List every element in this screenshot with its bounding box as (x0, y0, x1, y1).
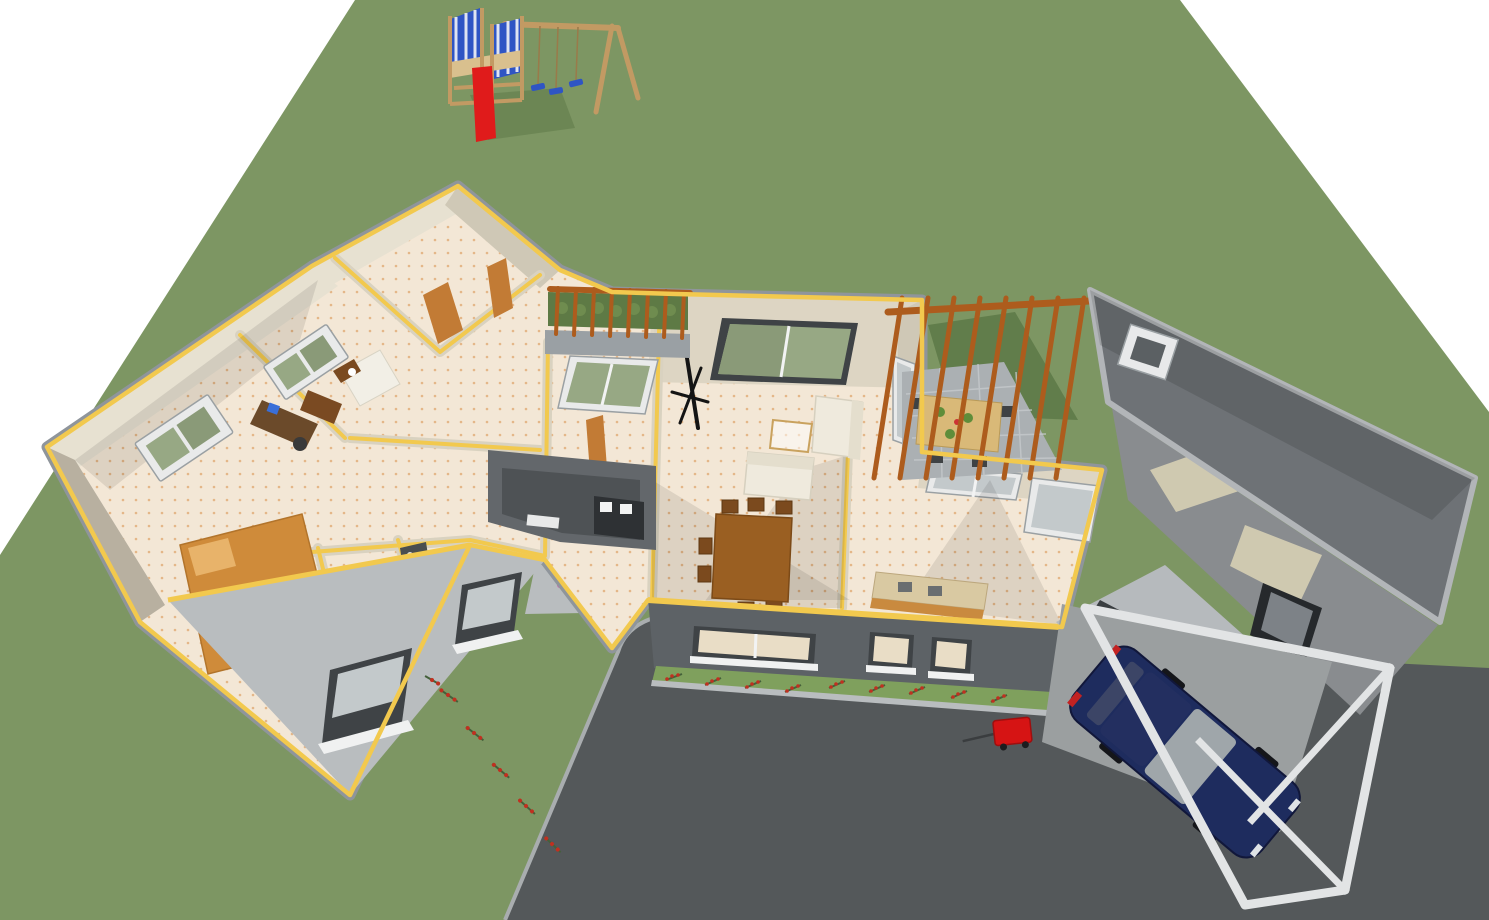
living-sliding-window (710, 318, 858, 385)
kitchen-corner-window (1024, 478, 1100, 542)
slide (472, 66, 496, 142)
sofa (744, 452, 814, 500)
garden-pergola (545, 288, 690, 358)
facade-window-small-2 (928, 637, 974, 681)
front-door (594, 496, 644, 540)
hall-window (558, 356, 658, 414)
coffee-table (770, 420, 812, 452)
3d-viewport[interactable] (0, 0, 1489, 920)
facade-window-small-1 (866, 632, 916, 675)
render-canvas (0, 0, 1489, 920)
sofa-chaise (812, 396, 864, 460)
dining-table (712, 514, 792, 602)
